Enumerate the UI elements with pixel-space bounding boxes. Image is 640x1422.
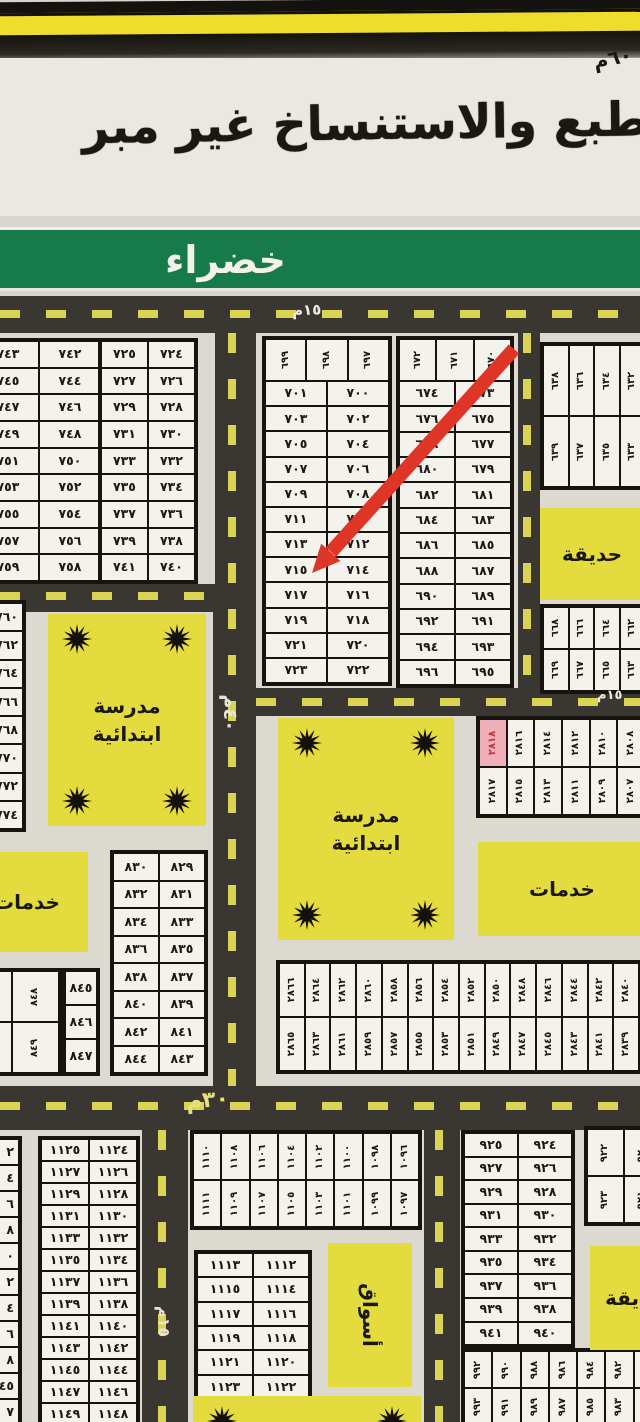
- plot-cell: ٧٣٩: [102, 529, 147, 554]
- plot-cell: ٦٩٥: [456, 661, 510, 684]
- area-garden-top-right: حديقة: [540, 508, 640, 600]
- plot-cell: ١١٣٩: [42, 1294, 88, 1314]
- plot-cell: ٨: [0, 1348, 18, 1372]
- plot-cell: ١١٢٠: [254, 1351, 308, 1373]
- plot-cell: ١١١٨: [254, 1327, 308, 1349]
- plot-cell: ٦٧٥: [456, 407, 510, 430]
- plot-cell: ٧٢٦: [149, 369, 194, 394]
- plot-cell: ٩٩٠: [493, 1352, 519, 1387]
- plot-cell: ٧٠٧: [266, 458, 326, 481]
- plot-cell: ٧٤٨: [40, 422, 100, 447]
- plot-cell: ٢٨٤٣: [563, 1018, 587, 1070]
- plot-cell: ٧٤٦: [40, 395, 100, 420]
- plot-cell: ٢٨٥٩: [357, 1018, 381, 1070]
- block-632-639: ٦٣٨٦٣٦٦٣٤٦٣٢٦٣٩٦٣٧٦٣٥٦٣٣: [540, 342, 640, 490]
- plot-cell: ٢٨٠٧: [618, 768, 640, 814]
- plot-cell: ٦٣٢: [621, 346, 640, 415]
- plot-cell: ٨٤١: [160, 1019, 204, 1045]
- plot-cell: ٧١١: [266, 508, 326, 531]
- plot-cell: ٩٨٤: [578, 1352, 604, 1387]
- road-dashes-main-horizontal: [0, 1102, 640, 1110]
- plot-cell: ٧٥٦: [40, 529, 100, 554]
- area-markets: أسواق: [328, 1243, 412, 1387]
- plot-cell: ٨٣٧: [160, 964, 204, 990]
- plot-cell: ٢٨٥١: [460, 1018, 484, 1070]
- plot-cell: ٨٤٥: [66, 972, 96, 1004]
- plot-cell: ٧٥٨: [40, 555, 100, 580]
- plot-cell: ٢٨٥٠: [486, 964, 510, 1016]
- plot-cell: ١١٣١: [42, 1206, 88, 1226]
- plot-cell: ٦٦٩: [544, 650, 568, 690]
- plot-cell: ٧١٣: [266, 533, 326, 556]
- block-924-941: ٩٢٥٩٢٤٩٢٧٩٢٦٩٢٩٩٢٨٩٣١٩٣٠٩٣٣٩٣٢٩٣٥٩٣٤٩٣٧٩…: [461, 1130, 575, 1348]
- plot-cell: ٦: [0, 1192, 18, 1216]
- plot-cell: ٧٠٣: [266, 407, 326, 430]
- plot-cell: ١١٠٨: [222, 1134, 248, 1179]
- plot-cell: ٢٨١٣: [535, 768, 561, 814]
- plot-cell: ٢٨١٨: [480, 720, 506, 766]
- plot-cell: ١١٢٧: [42, 1162, 88, 1182]
- plot-cell: ٢٨١٠: [591, 720, 617, 766]
- plot-cell: ٧١٤: [328, 558, 388, 581]
- plot-cell: ٢٨٥٢: [460, 964, 484, 1016]
- plot-cell: ٦٨٩: [456, 585, 510, 608]
- plot-cell: ١١٣٦: [90, 1272, 136, 1292]
- plot-cell: ٢٨٦٥: [280, 1018, 304, 1070]
- plot-cell: ٩٣٢: [519, 1228, 571, 1250]
- plot-cell: ٢٨٦٢: [331, 964, 355, 1016]
- plot-cell: ٨٣٨: [114, 964, 158, 990]
- plot-cell: ٦٣٨: [544, 346, 568, 415]
- plot-cell: ٦٩١: [456, 610, 510, 633]
- plot-cell: ١١٢١: [198, 1351, 252, 1373]
- plot-cell: ٩٨٠: [635, 1352, 640, 1387]
- plot-cell: ١١١٥: [198, 1278, 252, 1300]
- plot-cell: ٩٨٣: [606, 1389, 632, 1422]
- star-icon: [292, 900, 322, 930]
- block-1112-1123: ١١١٣١١١٢١١١٥١١١٤١١١٧١١١٦١١١٩١١١٨١١٢١١١٢٠…: [194, 1250, 312, 1402]
- area-garden-bottom-right: حديقة: [590, 1246, 640, 1350]
- plot-cell: ٢٨١٦: [508, 720, 534, 766]
- plot-cell: ٦٣٩: [544, 417, 568, 486]
- plot-cell: ٦٨٨: [400, 559, 454, 582]
- block-1096-1111: ١١١٠١١٠٨١١٠٦١١٠٤١١٠٢١١٠٠١٠٩٨١٠٩٦١١١١١١٠٩…: [190, 1130, 422, 1230]
- plot-cell: ١١٢٩: [42, 1184, 88, 1204]
- plot-cell: ٧: [0, 1400, 18, 1422]
- plot-cell: ٢: [0, 1270, 18, 1294]
- plot-cell: ٧٠٨: [328, 483, 388, 506]
- plot-cell: ٩٨٩: [522, 1389, 548, 1422]
- plot-cell: ٩٣٧: [465, 1275, 517, 1297]
- plot-cell: ١١٣٧: [42, 1272, 88, 1292]
- plot-cell: ٧٦٤: [0, 661, 22, 687]
- plot-cell: ٩٢٠: [625, 1130, 640, 1175]
- plot-cell: ٧٣٧: [102, 502, 147, 527]
- plot-cell: ٧٠٢: [328, 407, 388, 430]
- area-services-right: خدمات: [478, 842, 640, 936]
- plot-cell: ٨٤٤: [114, 1047, 158, 1073]
- plot-cell: ٦٧٨: [400, 433, 454, 456]
- plot-cell: ٧٣٢: [149, 449, 194, 474]
- plot-cell: ٢٨٤١: [589, 1018, 613, 1070]
- plot-cell: ٧٤٢: [40, 342, 100, 367]
- plot-cell: ٦٣٤: [595, 346, 619, 415]
- plot-cell: ١١٠٤: [279, 1134, 305, 1179]
- plot-cell: ١١٤٦: [90, 1382, 136, 1402]
- plot-cell: ٧٥٢: [40, 475, 100, 500]
- plot-cell: ٧٦٠: [0, 604, 22, 630]
- plot-cell: ٢٨٤٩: [486, 1018, 510, 1070]
- plot-cell: ٩٩٣: [465, 1389, 491, 1422]
- plot-cell: ٨٢٩: [160, 854, 204, 880]
- plot-cell: ٧٥٧: [0, 529, 38, 554]
- plot-cell: ١١٤٢: [90, 1338, 136, 1358]
- plot-cell: ٦٣٧: [570, 417, 594, 486]
- plot-cell: ١١٠٣: [307, 1181, 333, 1226]
- area-school-middle: مدرسة ابتدائية: [278, 718, 454, 940]
- star-icon: [162, 624, 192, 654]
- plot-cell: ٨٤٦: [66, 1006, 96, 1038]
- plot-cell: ٩٣٠: [519, 1205, 571, 1227]
- plot-cell: ١١٤٤: [90, 1360, 136, 1380]
- plot-cell: ٧٤٣: [0, 342, 38, 367]
- plot-cell: ٢٨٥٤: [434, 964, 458, 1016]
- plot-cell: ٦٩٤: [400, 635, 454, 658]
- plot-cell: ٧١٢: [328, 533, 388, 556]
- plot-cell: ٨٤٩: [13, 1023, 58, 1072]
- road-width-label-30m: ٣٠م: [185, 1086, 230, 1115]
- plot-cell: ٨: [0, 1218, 18, 1242]
- plot-cell: ٩٨٥: [578, 1389, 604, 1422]
- plot-cell: ٢٨٥٥: [409, 1018, 433, 1070]
- plot-cell: ٧١٦: [328, 583, 388, 606]
- plot-cell: ٩٢٦: [519, 1158, 571, 1180]
- plot-cell: ٢٨٦٠: [357, 964, 381, 1016]
- plot-cell: ٦٩٢: [400, 610, 454, 633]
- plot-cell: ١٠٩٨: [364, 1134, 390, 1179]
- block-2839-2866: ٢٨٦٦٢٨٦٤٢٨٦٢٢٨٦٠٢٨٥٨٢٨٥٦٢٨٥٤٢٨٥٢٢٨٥٠٢٨٤٨…: [276, 960, 640, 1074]
- road-dashes-bottom-vertical-1: [158, 1130, 166, 1422]
- plot-cell: ١١٠٥: [279, 1181, 305, 1226]
- plot-cell: ٩٨٨: [522, 1352, 548, 1387]
- area-garden-top-right-label: حديقة: [562, 540, 622, 568]
- block-920-923: ٩٢٢٩٢٠٩٢٣٩٢١: [584, 1126, 640, 1226]
- plot-cell: ٩٣٦: [519, 1275, 571, 1297]
- plot-cell: ٨٤٧: [66, 1040, 96, 1072]
- plot-cell: ١١٣٤: [90, 1250, 136, 1270]
- plot-cell: ١١٢٥: [42, 1140, 88, 1160]
- plot-cell: ٢٨٦٣: [306, 1018, 330, 1070]
- plot-cell: ٧٢٧: [102, 369, 147, 394]
- map: ١٥م ١٥م ٤٠م ٣٠م ١٥م ٧٤٣٧٤٢٧٤٥٧٤٤٧٤٧٧٤٦٧٤…: [0, 0, 640, 1422]
- plot-cell: ٦٦٦: [570, 608, 594, 648]
- block-670-696: ٦٧٢٦٧١٦٧٠٦٧٤٦٧٣٦٧٦٦٧٥٦٧٨٦٧٧٦٨٠٦٧٩٦٨٢٦٨١٦…: [396, 336, 514, 688]
- plot-cell: ٦٣٥: [595, 417, 619, 486]
- plot-cell: ٩٢٣: [588, 1177, 623, 1222]
- plot-cell: ٧٤٧: [0, 395, 38, 420]
- plot-cell: ٦٣٣: [621, 417, 640, 486]
- plot-cell: ٦٧٣: [456, 382, 510, 405]
- plot-cell: ١١١٠: [194, 1134, 220, 1179]
- plot-cell: ٧٢٩: [102, 395, 147, 420]
- plot-cell: ٦٦٥: [595, 650, 619, 690]
- plot-cell: ١١٢٦: [90, 1162, 136, 1182]
- plot-cell: ١١٢٨: [90, 1184, 136, 1204]
- plot-cell: ١١٢٤: [90, 1140, 136, 1160]
- plot-cell: ٩٣٩: [465, 1299, 517, 1321]
- plot-cell: ٩٣٣: [465, 1228, 517, 1250]
- area-markets-label: أسواق: [356, 1283, 384, 1347]
- plot-cell: ٢٨٥٣: [434, 1018, 458, 1070]
- plot-cell: ٠: [0, 1244, 18, 1268]
- block-697-723: ٦٩٩٦٩٨٦٩٧٧٠١٧٠٠٧٠٣٧٠٢٧٠٥٧٠٤٧٠٧٧٠٦٧٠٩٧٠٨٧…: [262, 336, 392, 686]
- plot-cell: ٧٣١: [102, 422, 147, 447]
- plot-cell: ٧١٧: [266, 583, 326, 606]
- plot-cell: ٩٤١: [465, 1323, 517, 1345]
- road-dashes-middle-horizontal: [256, 698, 640, 706]
- plot-cell: ١١٠٠: [335, 1134, 361, 1179]
- plot-cell: ٢٨٤٧: [511, 1018, 535, 1070]
- plot-cell: ٧٥٠: [40, 449, 100, 474]
- plot-cell: ٧٤٤: [40, 369, 100, 394]
- plot-cell: ٧٠٤: [328, 432, 388, 455]
- plot-cell: ٦٦٤: [595, 608, 619, 648]
- plot-cell: ٧٢٥: [102, 342, 147, 367]
- plot-cell: ٦٦٢: [621, 608, 640, 648]
- plot-cell: ٧٧٤: [0, 802, 22, 828]
- plot-cell: ٢٨١١: [563, 768, 589, 814]
- area-services-left-label: خدمات: [0, 888, 60, 916]
- plot-cell: ٦٧٤: [400, 382, 454, 405]
- area-school-left: مدرسة ابتدائية: [48, 614, 206, 826]
- plot-cell: ٤٥: [0, 1374, 18, 1398]
- plot-cell: ٧٣٦: [149, 502, 194, 527]
- plot-cell: ١١١٩: [198, 1327, 252, 1349]
- plot-cell: ٧٢٤: [149, 342, 194, 367]
- road-dashes-right-vertical: [523, 333, 531, 688]
- plot-cell: ٧١٠: [328, 508, 388, 531]
- plot-cell: ٢٨٣٩: [614, 1018, 638, 1070]
- plot-cell: ٢٨٦٦: [280, 964, 304, 1016]
- plot-cell: ٧٥٤: [40, 502, 100, 527]
- plot-cell: ٦٧٩: [456, 458, 510, 481]
- plot-cell: ٢٨٥٨: [383, 964, 407, 1016]
- plot-cell: ٦٦٨: [544, 608, 568, 648]
- plot-cell: ١١٣٨: [90, 1294, 136, 1314]
- area-school-middle-label: مدرسة ابتدائية: [318, 801, 414, 857]
- plot-cell: ١١٤١: [42, 1316, 88, 1336]
- plot-cell: ٧٦٨: [0, 717, 22, 743]
- plot-cell: ٧١٥: [266, 558, 326, 581]
- plot-cell: ١٠٩٦: [392, 1134, 418, 1179]
- road-dashes-left-horizontal: [0, 592, 212, 600]
- plot-cell: ٢٨٤٥: [537, 1018, 561, 1070]
- plot-cell: ٧٢٨: [149, 395, 194, 420]
- plot-cell: ٧٤١: [102, 555, 147, 580]
- plot-cell: ١١٣٠: [90, 1206, 136, 1226]
- plot-cell: ٧٣٠: [149, 422, 194, 447]
- plot-cell: ٢٨٥٧: [383, 1018, 407, 1070]
- plot-cell: ٨٣٤: [114, 909, 158, 935]
- plot-cell: ٦٨٧: [456, 559, 510, 582]
- plot-cell: ٦٩٠: [400, 585, 454, 608]
- plot-cell: ١١٠٧: [251, 1181, 277, 1226]
- plot-cell: ١١٤٥: [42, 1360, 88, 1380]
- plot-cell: ١١٤٣: [42, 1338, 88, 1358]
- plot-cell: ٢٨٦٤: [306, 964, 330, 1016]
- plot-cell: ١١١٧: [198, 1303, 252, 1325]
- block-760-774: ٧٦٠٧٦٢٧٦٤٧٦٦٧٦٨٧٧٠٧٧٢٧٧٤: [0, 600, 26, 832]
- plot-cell: ٢٨٤٨: [511, 964, 535, 1016]
- plot-cell: ٢٨٥٦: [409, 964, 433, 1016]
- plot-cell: ٢٨٤٢: [589, 964, 613, 1016]
- plot-cell: ٢٨١٢: [563, 720, 589, 766]
- plot-cell: ٨٣٠: [114, 854, 158, 880]
- plot-cell: ٩٨٦: [550, 1352, 576, 1387]
- plot-cell: ٧٦٢: [0, 632, 22, 658]
- plot-cell: ١١٠٢: [307, 1134, 333, 1179]
- plot-cell: ٦٨٠: [400, 458, 454, 481]
- plot-cell: ١١١٣: [198, 1254, 252, 1276]
- plot-cell: ٦٦٣: [621, 650, 640, 690]
- plot-cell: ٢٨٤٤: [563, 964, 587, 1016]
- road-width-label-40m: ٤٠م: [219, 687, 241, 739]
- plot-cell: ٦٨٥: [456, 534, 510, 557]
- star-icon: [410, 728, 440, 758]
- plot-cell: ٦٨٦: [400, 534, 454, 557]
- plot-cell: ٢٨٦١: [331, 1018, 355, 1070]
- plot-cell: ٧٠١: [266, 382, 326, 405]
- plot-cell: ١١٠١: [335, 1181, 361, 1226]
- plot-cell: ٩٣٥: [465, 1252, 517, 1274]
- plot-cell: ١١٢٢: [254, 1376, 308, 1398]
- plot-cell: ١١٠٦: [251, 1134, 277, 1179]
- plot-cell: ٨٤٨: [13, 972, 58, 1021]
- plot-cell: ٢: [0, 1140, 18, 1164]
- block-845-847: ٨٤٥٨٤٦٨٤٧: [62, 968, 100, 1076]
- plot-cell: ٦٣٦: [570, 346, 594, 415]
- plot-cell: ٩٣٤: [519, 1252, 571, 1274]
- area-garden-bottom-right-label: حديقة: [605, 1284, 640, 1312]
- plot-cell: ٧٣٤: [149, 475, 194, 500]
- plot-cell: ٢٨٠٩: [591, 768, 617, 814]
- plot-cell: ١١٤٧: [42, 1382, 88, 1402]
- plot-cell: ٧٠٠: [328, 382, 388, 405]
- plot-cell: ٩٢٨: [519, 1181, 571, 1203]
- subdivision-map-photo: الطبع والاستنساخ غير مبر ٦٠م خضراء ١٥م ١…: [0, 0, 640, 1422]
- plot-cell: ٧١٩: [266, 609, 326, 632]
- plot-cell: ٧٢٠: [328, 634, 388, 657]
- block-2807-2818: ٢٨١٨٢٨١٦٢٨١٤٢٨١٢٢٨١٠٢٨٠٨٢٨١٧٢٨١٥٢٨١٣٢٨١١…: [476, 716, 640, 818]
- road-dashes-bottom-vertical-2: [435, 1130, 443, 1422]
- road-width-label-middle-right: ١٥م: [597, 688, 622, 703]
- plot-cell: ٦٩٨: [307, 340, 346, 380]
- area-bottom-cut: [193, 1396, 421, 1422]
- plot-cell: ٢٨٤٠: [614, 964, 638, 1016]
- plot-cell: ١١٠٩: [222, 1181, 248, 1226]
- plot-cell: ٤: [0, 1166, 18, 1190]
- plot-cell: ٩٢٥: [465, 1134, 517, 1156]
- plot-cell: ٦٧١: [437, 340, 472, 380]
- plot-cell: ٩٣١: [465, 1205, 517, 1227]
- plot-cell: ٨٣٩: [160, 992, 204, 1018]
- plot-cell: ٨٥١: [0, 1023, 11, 1072]
- plot-cell: ٧٤٩: [0, 422, 38, 447]
- plot-cell: ٧٤٥: [0, 369, 38, 394]
- plot-cell: ٧٣٥: [102, 475, 147, 500]
- plot-cell: ٨٣٥: [160, 937, 204, 963]
- star-icon: [62, 624, 92, 654]
- plot-cell: ١١٤٩: [42, 1404, 88, 1422]
- plot-cell: ٧٢٣: [266, 659, 326, 682]
- plot-cell: ٧٣٨: [149, 529, 194, 554]
- plot-cell: ٦٩٣: [456, 635, 510, 658]
- plot-cell: ١١٤٠: [90, 1316, 136, 1336]
- plot-cell: ٩٩١: [493, 1389, 519, 1422]
- plot-cell: ٩٤٠: [519, 1323, 571, 1345]
- plot-cell: ٦٨٣: [456, 509, 510, 532]
- plot-cell: ٦٩٩: [266, 340, 305, 380]
- road-width-label-15m-bottom: ١٥م: [155, 1294, 174, 1350]
- plot-cell: ٩٨٢: [606, 1352, 632, 1387]
- plot-cell: ٧٥٣: [0, 475, 38, 500]
- plot-cell: ٧٧٢: [0, 774, 22, 800]
- plot-cell: ١١٤٨: [90, 1404, 136, 1422]
- plot-cell: ٧٥٥: [0, 502, 38, 527]
- plot-cell: ٦٩٧: [349, 340, 388, 380]
- plot-cell: ٢٨١٥: [508, 768, 534, 814]
- plot-cell: ٩٨١: [635, 1389, 640, 1422]
- plot-cell: ٧٠٩: [266, 483, 326, 506]
- plot-cell: ٢٨٠٨: [618, 720, 640, 766]
- plot-cell: ٦٦٧: [570, 650, 594, 690]
- plot-cell: ٧٣٣: [102, 449, 147, 474]
- plot-cell: ٨٤٢: [114, 1019, 158, 1045]
- star-icon: [410, 900, 440, 930]
- plot-cell: ٦٨٢: [400, 483, 454, 506]
- plot-cell: ٦٧٢: [400, 340, 435, 380]
- plot-cell: ٢٨١٤: [535, 720, 561, 766]
- plot-cell: ٦٧٠: [475, 340, 510, 380]
- plot-cell: ٦٧٦: [400, 407, 454, 430]
- plot-cell: ١٠٩٩: [364, 1181, 390, 1226]
- plot-cell: ١١٣٢: [90, 1228, 136, 1248]
- area-services-right-label: خدمات: [529, 875, 595, 903]
- plot-cell: ٧٢٢: [328, 659, 388, 682]
- plot-cell: ٩٢٢: [588, 1130, 623, 1175]
- plot-cell: ٦٩٦: [400, 661, 454, 684]
- plot-cell: ٨٤٣: [160, 1047, 204, 1073]
- block-left-edge-fragments: ٢٤٦٨٠٢٤٦٨٤٥٧: [0, 1136, 22, 1422]
- plot-cell: ٨٣٢: [114, 882, 158, 908]
- block-662-669: ٦٦٨٦٦٦٦٦٤٦٦٢٦٦٩٦٦٧٦٦٥٦٦٣: [540, 604, 640, 694]
- plot-cell: ٨٣٦: [114, 937, 158, 963]
- road-width-label-top: ١٥م: [292, 300, 322, 320]
- plot-cell: ٢٨٤٦: [537, 964, 561, 1016]
- block-829-844: ٨٣٠٨٢٩٨٣٢٨٣١٨٣٤٨٣٣٨٣٦٨٣٥٨٣٨٨٣٧٨٤٠٨٣٩٨٤٢٨…: [110, 850, 208, 1076]
- plot-cell: ١١٣٣: [42, 1228, 88, 1248]
- plot-cell: ١١١٦: [254, 1303, 308, 1325]
- area-services-left: خدمات: [0, 852, 88, 952]
- star-icon: [377, 1416, 407, 1422]
- star-icon: [207, 1416, 237, 1422]
- plot-cell: ٧٥٩: [0, 555, 38, 580]
- plot-cell: ٨٣١: [160, 882, 204, 908]
- plot-cell: ٩٢١: [625, 1177, 640, 1222]
- plot-cell: ٤: [0, 1296, 18, 1320]
- plot-cell: ٧٠٥: [266, 432, 326, 455]
- plot-cell: ١١١٢: [254, 1254, 308, 1276]
